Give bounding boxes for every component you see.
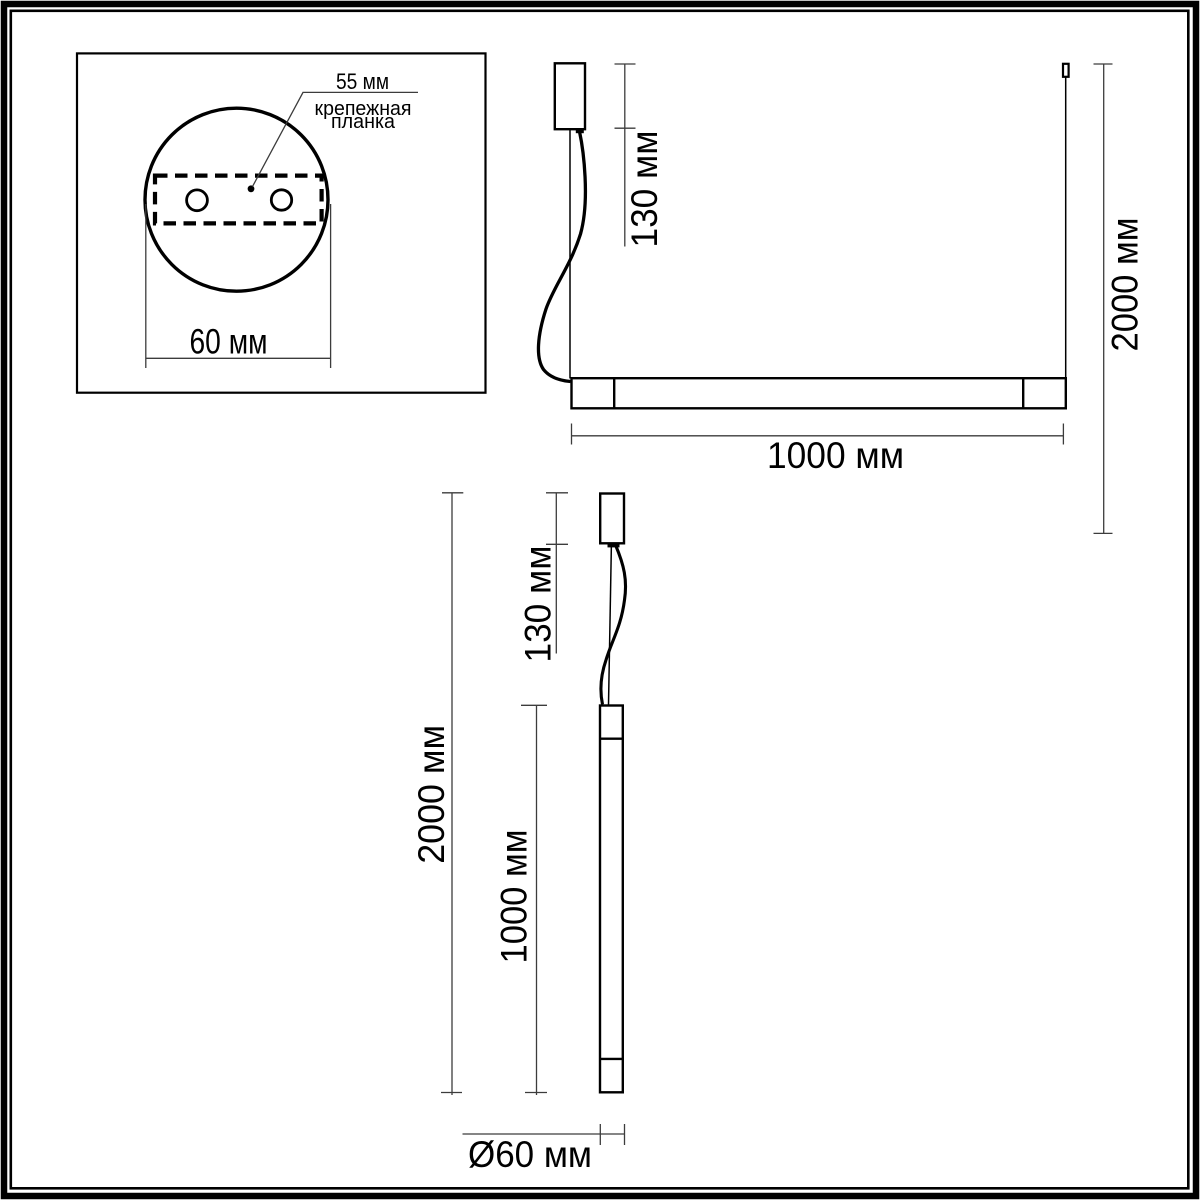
svg-text:2000 мм: 2000 мм: [1104, 218, 1146, 352]
svg-text:1000 мм: 1000 мм: [767, 434, 904, 476]
svg-text:55 мм: 55 мм: [336, 69, 389, 94]
svg-text:2000 мм: 2000 мм: [410, 725, 452, 864]
svg-text:1000 мм: 1000 мм: [493, 830, 535, 964]
svg-text:планка: планка: [331, 111, 396, 133]
svg-text:Ø60 мм: Ø60 мм: [468, 1133, 592, 1175]
svg-text:130 мм: 130 мм: [623, 131, 665, 248]
svg-text:60 мм: 60 мм: [190, 322, 268, 362]
svg-text:130 мм: 130 мм: [517, 546, 559, 663]
